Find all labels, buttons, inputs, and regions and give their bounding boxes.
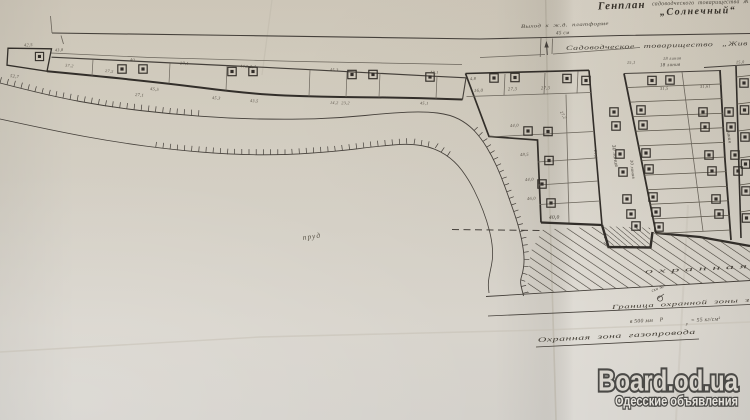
svg-text:18 линия: 18 линия (660, 63, 681, 69)
svg-text:Генплан: Генплан (597, 0, 646, 13)
svg-text:40,0: 40,0 (549, 215, 560, 221)
svg-text:45 см: 45 см (556, 29, 570, 36)
svg-text:Одесские объявления: Одесские объявления (615, 394, 738, 409)
svg-text:„Солнечный“: „Солнечный“ (660, 5, 737, 18)
svg-text:у: у (685, 321, 688, 326)
svg-text:40: 40 (130, 57, 136, 62)
svg-text:18 линия: 18 линия (663, 55, 682, 61)
